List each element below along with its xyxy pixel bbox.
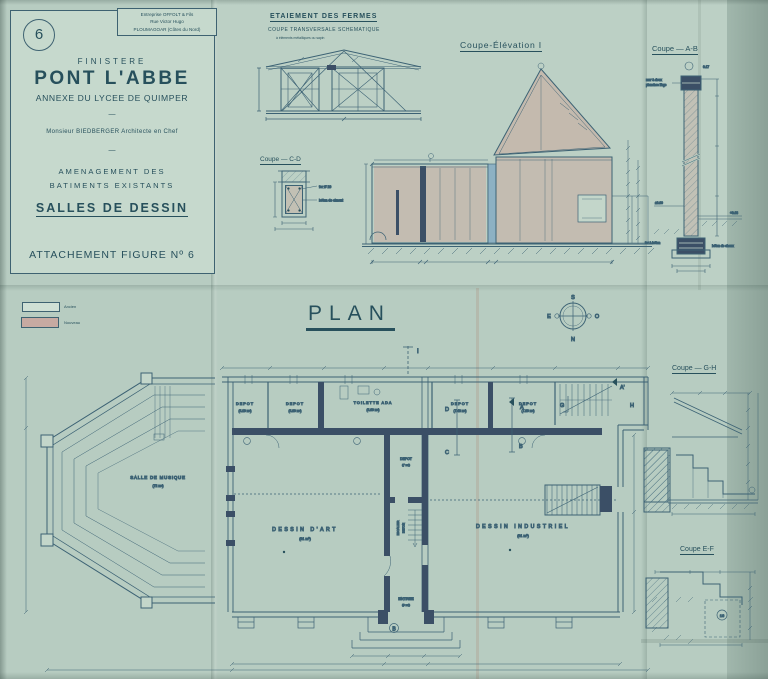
room-depot1-name: DEPOT bbox=[236, 402, 254, 406]
ab-level-right: +0.68 bbox=[730, 211, 738, 215]
ab-label-mur-2: planches liège bbox=[646, 83, 667, 87]
room-industriel-area: (61 m²) bbox=[517, 534, 529, 538]
room-depot2-area: (4.80 m²) bbox=[289, 409, 302, 413]
coupe-gh-drawing bbox=[644, 391, 758, 516]
floor-plan: I bbox=[24, 346, 668, 672]
blueprint-sheet: 6 Entreprise OFFOLT & Fils Rue Victor Hu… bbox=[0, 0, 768, 679]
room-industriel-name: DESSIN INDUSTRIEL bbox=[476, 524, 570, 530]
marker-b-entry: B bbox=[392, 627, 396, 633]
coupe-ef-drawing: 16 bbox=[646, 570, 755, 647]
compass-north: N bbox=[571, 337, 575, 343]
ab-mark-top: 0.17 bbox=[703, 65, 709, 69]
room-toilette-name: TOILETTE ADA bbox=[354, 401, 393, 405]
compass-west: O bbox=[595, 314, 600, 320]
drawing-linework: fer Ø 20 béton de ciment bbox=[0, 0, 768, 679]
room-musique-name: SALLE DE MUSIQUE bbox=[130, 475, 186, 480]
marker-a-prime: A' bbox=[620, 385, 625, 391]
room-art-area: (61 m²) bbox=[299, 537, 311, 541]
marker-d: D bbox=[445, 407, 449, 413]
stair-label-2: BETON bbox=[402, 523, 406, 533]
coupe-ab-drawing: 0.17 mur à deux planches liège ±0.00 +0.… bbox=[645, 62, 742, 273]
room-toilette-area: (4.60 m²) bbox=[367, 408, 380, 412]
room-depot3-area: (7.48 m²) bbox=[454, 409, 467, 413]
room-entree-name: ENTREE bbox=[398, 597, 414, 601]
cd-label-beton: béton de ciment bbox=[319, 199, 343, 203]
truss-diagram bbox=[257, 50, 421, 121]
ab-level-left: ±0.00 bbox=[655, 201, 663, 205]
ab-label-fond-2: béton de chaux bbox=[712, 244, 734, 248]
room-entree-area: (9 m²) bbox=[402, 603, 410, 607]
room-depot5-name: DEPOT bbox=[400, 457, 412, 461]
room-depot1-area: (4.10 m²) bbox=[239, 409, 252, 413]
room-depot4-area: (7.80 m²) bbox=[522, 409, 535, 413]
marker-c: C bbox=[445, 450, 449, 456]
marker-i: I bbox=[417, 349, 419, 355]
room-musique-area: (72 m²) bbox=[153, 484, 164, 488]
marker-b: B bbox=[519, 444, 523, 450]
compass-east: E bbox=[547, 314, 551, 320]
stair-label-1: ESCALIER bbox=[396, 520, 400, 536]
room-art-name: DESSIN D'ART bbox=[272, 527, 338, 533]
ef-step-count: 16 bbox=[720, 613, 725, 618]
ab-label-fond-1: fer à béton bbox=[645, 241, 660, 245]
marker-g: G bbox=[560, 403, 564, 409]
elevation-drawing bbox=[362, 63, 654, 264]
ab-label-mur-1: mur à deux bbox=[646, 78, 662, 82]
room-depot5-area: (7 m²) bbox=[402, 463, 410, 467]
marker-h: H bbox=[630, 403, 634, 409]
coupe-cd-drawing: fer Ø 20 béton de ciment bbox=[273, 171, 343, 231]
room-depot3-name: DEPOT bbox=[451, 402, 469, 406]
cd-label-fer: fer Ø 20 bbox=[319, 185, 331, 189]
room-depot2-name: DEPOT bbox=[286, 402, 304, 406]
compass-south: S bbox=[571, 295, 575, 301]
room-depot4-name: DEPOT bbox=[519, 402, 537, 406]
compass-rose: S E O N bbox=[547, 295, 600, 343]
